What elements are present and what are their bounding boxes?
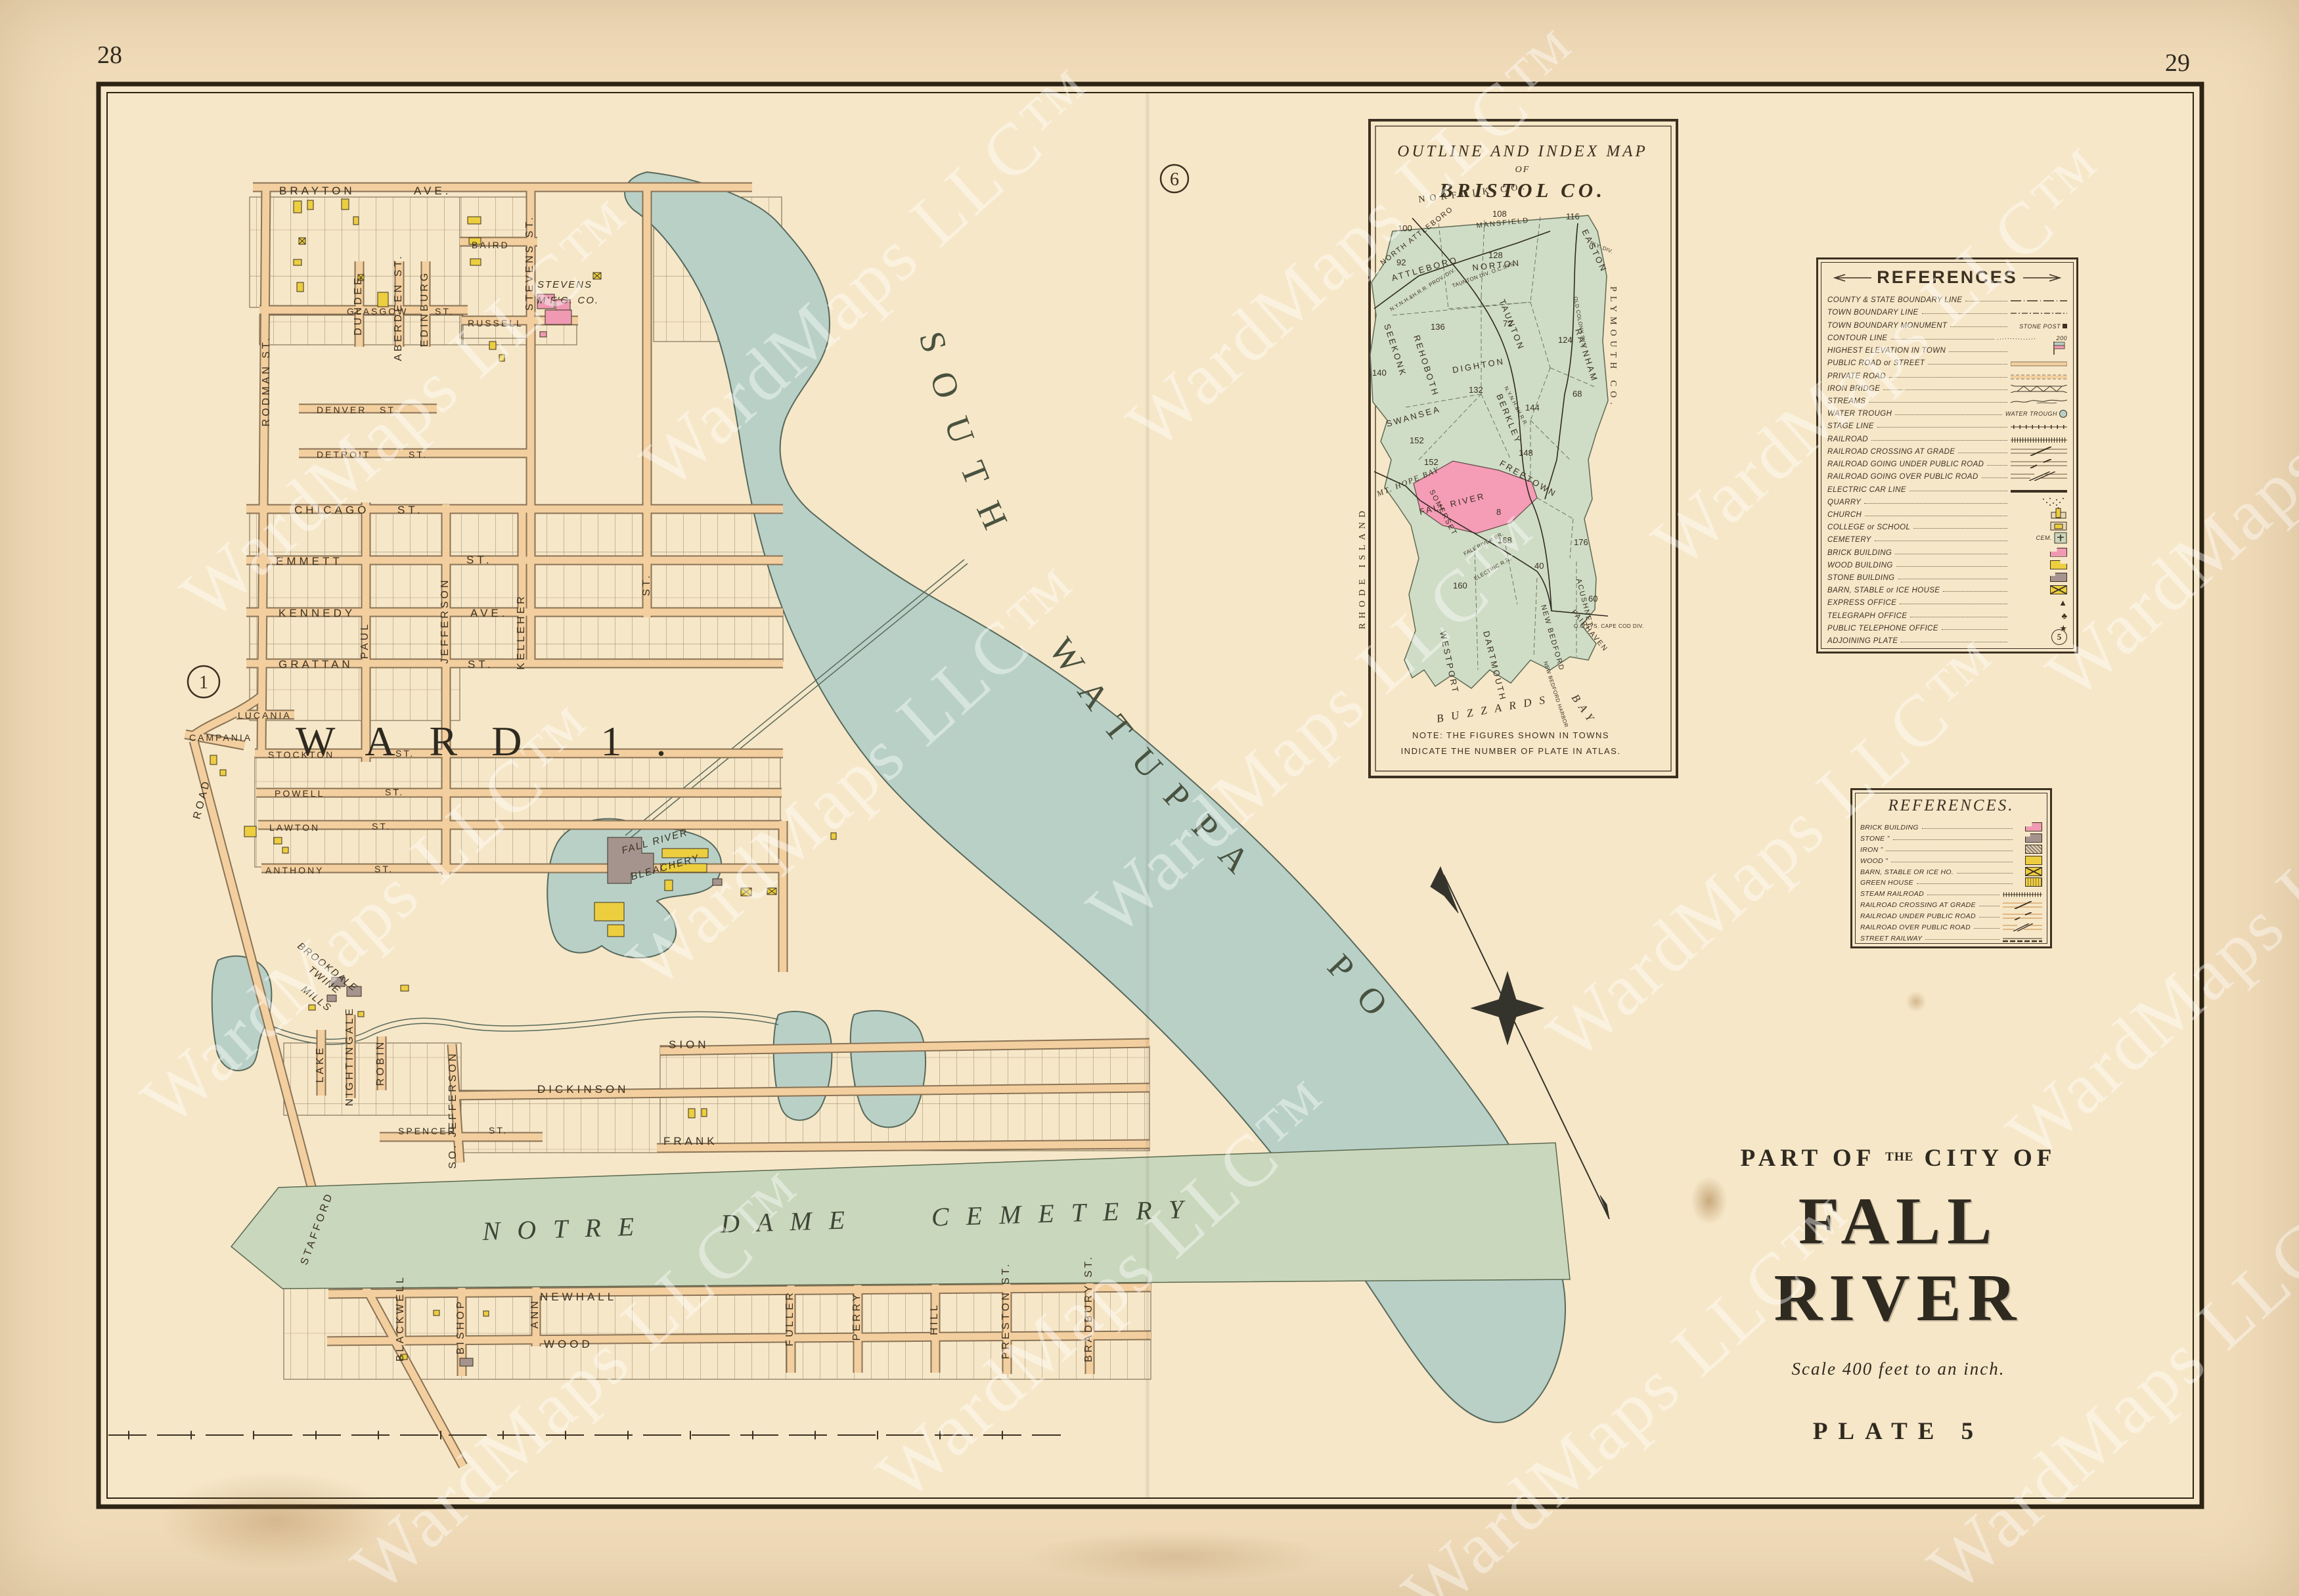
church-icon <box>2050 507 2067 519</box>
rr-under-symbol <box>2011 459 2067 468</box>
street-label-denver: DENVER <box>317 405 367 415</box>
iron-building-icon <box>2025 845 2042 854</box>
svg-text:124: 124 <box>1558 335 1573 345</box>
street-label-bradbury: BRADBURY ST. <box>1083 1254 1094 1362</box>
street-label-newhall: NEWHALL <box>540 1291 617 1303</box>
legend-row-electric: ELECTRIC CAR LINE <box>1827 481 2067 493</box>
legend-row-elevation: HIGHEST ELEVATION IN TOWN <box>1827 342 2067 355</box>
street-label-dundee: DUNDEE <box>353 275 364 336</box>
svg-text:108: 108 <box>1492 209 1507 219</box>
street-label-paul: PAUL <box>359 622 370 659</box>
legend-row-adjoining: ADJOINING PLATE5 <box>1827 632 2067 645</box>
legend2-row-rr-under: RAILROAD UNDER PUBLIC ROAD <box>1860 909 2042 920</box>
flourish-arrow-left-icon <box>1833 273 1871 282</box>
street-label-rodman: RODMAN ST. <box>261 336 272 427</box>
street-label-brayton-sfx: AVE. <box>414 185 451 197</box>
legend-row-monument: TOWN BOUNDARY MONUMENTSTONE POST <box>1827 317 2067 329</box>
stage-line-symbol <box>2011 424 2067 430</box>
svg-text:RHODE ISLAND: RHODE ISLAND <box>1358 506 1368 629</box>
svg-text:152: 152 <box>1410 435 1424 445</box>
telegraph-office-icon: ♣ <box>2061 611 2067 620</box>
svg-text:68: 68 <box>1573 389 1582 399</box>
svg-text:128: 128 <box>1488 250 1503 260</box>
street-label-kennedy-sfx: AVE. <box>470 607 508 619</box>
references-legend: REFERENCES COUNTY & STATE BOUNDARY LINE … <box>1816 257 2078 654</box>
legend-row-water-trough: WATER TROUGHWATER TROUGH <box>1827 405 2067 418</box>
svg-text:92: 92 <box>1396 257 1406 267</box>
legend-row-streams: STREAMS <box>1827 393 2067 405</box>
inset-title-2: OF <box>1515 165 1530 175</box>
adjoining-plate-1: 1 <box>199 673 208 693</box>
stone-building-icon <box>2050 573 2067 582</box>
street-label-edinburg: EDINBURG <box>419 271 430 347</box>
svg-text:116: 116 <box>1566 211 1580 221</box>
svg-text:60: 60 <box>1588 594 1597 604</box>
svg-text:144: 144 <box>1525 403 1540 412</box>
legend-row-church: CHURCH <box>1827 506 2067 519</box>
street-label-anthony-sfx: ST. <box>374 864 393 874</box>
street-label-grattan: GRATTAN <box>279 658 353 671</box>
legend2-row-greenhouse: GREEN HOUSE <box>1860 876 2042 887</box>
legend2-row-brick: BRICK BUILDING <box>1860 820 2042 831</box>
page-number-right: 29 <box>2165 49 2190 78</box>
legend-row-public-road: PUBLIC ROAD or STREET <box>1827 355 2067 367</box>
legend-row-rr-over: RAILROAD GOING OVER PUBLIC ROAD <box>1827 468 2067 481</box>
legend2-row-wood: WOOD ” <box>1860 854 2042 865</box>
street-label-robin: ROBIN <box>375 1040 386 1086</box>
rr-over-symbol <box>2011 472 2067 481</box>
rr-under-symbol <box>2003 912 2042 920</box>
stone-building-icon <box>2025 833 2042 843</box>
street-label-frank: FRANK <box>663 1135 718 1147</box>
county-boundary-symbol <box>2011 298 2067 304</box>
street-label-campania: CAMPANIA <box>189 732 252 743</box>
street-label-wood: WOOD <box>544 1338 593 1350</box>
title-block: PART OF THE CITY OF FALL RIVER Scale 400… <box>1668 1144 2128 1446</box>
college-icon <box>2050 521 2067 531</box>
street-label-jefferson: JEFFERSON <box>439 577 451 663</box>
adjoining-plate-icon: 5 <box>2051 629 2067 645</box>
legend-row-iron-bridge: IRON BRIDGE <box>1827 380 2067 393</box>
contour-symbol <box>1998 334 2054 342</box>
references-legend-small: REFERENCES. BRICK BUILDING STONE ” IRON … <box>1850 788 2052 948</box>
street-label-grattan-sfx: ST. <box>468 658 494 671</box>
street-label-powell: POWELL <box>275 788 324 799</box>
adjoining-plate-6: 6 <box>1170 169 1179 190</box>
legend-row-contour: CONTOUR LINE200 <box>1827 330 2067 342</box>
street-railway-symbol <box>2003 937 2042 942</box>
street-label-sion: SION <box>669 1038 709 1051</box>
iron-bridge-symbol <box>2011 385 2067 393</box>
legend2-row-rr-over: RAILROAD OVER PUBLIC ROAD <box>1860 920 2042 931</box>
street-label-nightingale: NIGHTINGALE <box>344 1006 355 1106</box>
legend-row-express: EXPRESS OFFICE▲ <box>1827 594 2067 607</box>
rr-crossing-symbol <box>2003 901 2042 909</box>
street-label-chicago-sfx: ST. <box>397 504 424 516</box>
legend2-row-stone: STONE ” <box>1860 831 2042 843</box>
inset-map: OUTLINE AND INDEX MAP OF BRISTOL CO. NOR… <box>1358 120 1677 777</box>
brick-building-icon <box>2025 822 2042 831</box>
express-office-icon: ▲ <box>2059 598 2067 607</box>
title-the: THE <box>1885 1150 1913 1164</box>
street-label-aberdeen: ABERDEEN ST. <box>393 254 404 361</box>
legend-row-rr-under: RAILROAD GOING UNDER PUBLIC ROAD <box>1827 456 2067 468</box>
street-label-detroit: DETROIT <box>317 449 370 460</box>
ward-label: WARD 1. <box>296 718 700 765</box>
street-label-powell-sfx: ST. <box>385 787 404 797</box>
references-legend-title: REFERENCES <box>1827 267 2067 288</box>
street-label-glasgow-sfx: ST. <box>435 306 454 317</box>
street-label-emmett-sfx: ST. <box>466 554 493 566</box>
greenhouse-icon <box>2025 877 2042 887</box>
flourish-arrow-right-icon <box>2023 273 2061 282</box>
svg-text:100: 100 <box>1398 223 1412 233</box>
barn-icon <box>2025 867 2042 876</box>
street-label-ann: ANN <box>529 1298 541 1329</box>
legend-row-railroad: RAILROAD <box>1827 430 2067 443</box>
street-label-brayton: BRAYTON <box>279 185 355 197</box>
legend-row-county-boundary: COUNTY & STATE BOUNDARY LINE <box>1827 292 2067 304</box>
references-small-title: REFERENCES. <box>1860 797 2042 815</box>
street-label-lucania: LUCANIA <box>238 710 292 720</box>
public-road-symbol <box>2011 361 2067 367</box>
cemetery-icon <box>2054 532 2067 544</box>
title-city-name: FALL RIVER <box>1668 1183 2128 1337</box>
street-label-bishop: BISHOP <box>455 1299 466 1354</box>
street-label-perry: PERRY <box>851 1292 862 1341</box>
street-label-kelleher: KELLEHER <box>516 594 527 670</box>
legend-row-private-road: PRIVATE ROAD <box>1827 367 2067 380</box>
rr-over-symbol <box>2003 923 2042 931</box>
title-scale: Scale 400 feet to an inch. <box>1668 1359 2128 1379</box>
street-label-lawton: LAWTON <box>269 822 320 833</box>
barn-icon <box>2050 585 2067 594</box>
svg-text:72: 72 <box>1503 319 1512 328</box>
inset-title-1: OUTLINE AND INDEX MAP <box>1397 143 1647 160</box>
svg-text:136: 136 <box>1431 322 1445 332</box>
legend-row-quarry: QUARRY <box>1827 494 2067 506</box>
svg-text:8: 8 <box>1496 507 1501 517</box>
svg-text:40: 40 <box>1534 561 1544 571</box>
street-label-fuller: FULLER <box>784 1290 795 1346</box>
svg-text:176: 176 <box>1574 537 1588 547</box>
streams-symbol <box>2011 397 2067 405</box>
label-stevens-mfg-2: M'F'G. CO. <box>537 295 599 306</box>
legend-row-town-boundary: TOWN BOUNDARY LINE <box>1827 304 2067 317</box>
legend-row-brick: BRICK BUILDING <box>1827 544 2067 556</box>
street-label-st: ST. <box>641 573 652 596</box>
legend-row-cemetery: CEMETERYCEM. <box>1827 531 2067 544</box>
inset-note-1: NOTE: THE FIGURES SHOWN IN TOWNS <box>1412 730 1609 740</box>
svg-text:132: 132 <box>1469 385 1483 395</box>
svg-text:PLYMOUTH CO.: PLYMOUTH CO. <box>1608 286 1618 409</box>
legend-row-stone: STONE BUILDING <box>1827 569 2067 582</box>
wood-building-icon <box>2050 560 2067 569</box>
street-label-stevens: STEVENS ST. <box>524 215 535 311</box>
legend2-row-rr-grade: RAILROAD CROSSING AT GRADE <box>1860 898 2042 909</box>
street-label-blackwell: BLACKWELL <box>395 1275 406 1362</box>
street-label-spencer-sfx: ST. <box>489 1125 508 1136</box>
label-stevens-mfg-1: STEVENS <box>537 279 592 290</box>
street-label-lawton-sfx: ST. <box>372 821 391 831</box>
svg-text:148: 148 <box>1519 448 1533 458</box>
street-label-kennedy: KENNEDY <box>279 607 355 619</box>
quarry-symbol <box>2041 497 2067 506</box>
legend2-row-street-railway: STREET RAILWAY <box>1860 931 2042 942</box>
flag-icon <box>2051 342 2067 355</box>
legend-row-college: COLLEGE or SCHOOL <box>1827 519 2067 531</box>
brick-building-icon <box>2050 548 2067 557</box>
street-label-anthony: ANTHONY <box>265 865 324 876</box>
street-label-denver-sfx: ST. <box>380 405 399 415</box>
stone-post-icon <box>2063 324 2067 328</box>
svg-text:140: 140 <box>1372 368 1387 378</box>
street-label-preston: PRESTON ST. <box>1000 1262 1012 1360</box>
legend-row-rr-grade: RAILROAD CROSSING AT GRADE <box>1827 443 2067 456</box>
street-label-russell: RUSSELL <box>468 318 524 328</box>
private-road-symbol <box>2011 374 2067 380</box>
legend-row-barn: BARN, STABLE or ICE HOUSE <box>1827 582 2067 594</box>
page-number-left: 28 <box>97 41 122 70</box>
street-label-so-jefferson: SO. JEFFERSON <box>447 1051 458 1168</box>
street-label-emmett: EMMETT <box>276 555 343 567</box>
electric-line-symbol <box>2011 489 2067 494</box>
street-label-baird: BAIRD <box>472 240 510 250</box>
railroad-symbol <box>2011 437 2067 443</box>
svg-text:O.C.SYS. CAPE COD DIV.: O.C.SYS. CAPE COD DIV. <box>1574 623 1644 629</box>
street-label-hill: HILL <box>929 1302 940 1335</box>
atlas-sheet: BRAYTON AVE. BAIRD RUSSELL GLASGOW ST. D… <box>0 0 2299 1596</box>
town-boundary-symbol <box>2011 310 2067 317</box>
legend2-row-steam-rr: STEAM RAILROAD <box>1860 887 2042 898</box>
title-plate-number: PLATE 5 <box>1668 1417 2128 1446</box>
inset-note-2: INDICATE THE NUMBER OF PLATE IN ATLAS. <box>1401 746 1621 756</box>
legend-row-wood: WOOD BUILDING <box>1827 557 2067 569</box>
legend-row-stage-line: STAGE LINE <box>1827 418 2067 430</box>
legend2-row-iron: IRON ” <box>1860 843 2042 854</box>
street-label-dickinson: DICKINSON <box>537 1083 629 1096</box>
wood-building-icon <box>2025 856 2042 865</box>
title-part-of: PART OF THE CITY OF <box>1668 1144 2128 1172</box>
legend-row-telegraph: TELEGRAPH OFFICE♣ <box>1827 607 2067 619</box>
street-label-chicago: CHICAGO <box>294 504 369 516</box>
legend2-row-barn: BARN, STABLE OR ICE HO. <box>1860 865 2042 876</box>
rr-crossing-symbol <box>2011 447 2067 456</box>
steam-railroad-symbol <box>2003 891 2042 898</box>
water-trough-icon <box>2059 410 2067 418</box>
street-label-lake: LAKE <box>315 1046 326 1083</box>
street-label-detroit-sfx: ST. <box>409 449 428 460</box>
svg-text:160: 160 <box>1453 581 1467 590</box>
